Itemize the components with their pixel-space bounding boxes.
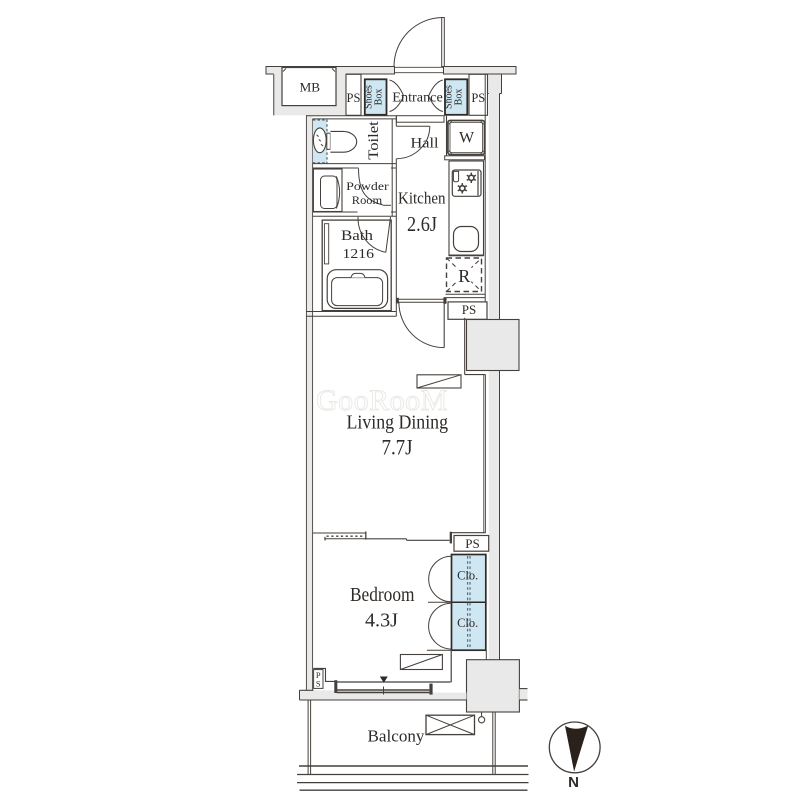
svg-text:Kitchen: Kitchen: [398, 189, 446, 208]
svg-text:Toilet: Toilet: [366, 120, 382, 160]
svg-text:PS: PS: [465, 536, 479, 551]
svg-text:MB: MB: [300, 80, 321, 94]
svg-text:Bath: Bath: [341, 228, 374, 244]
svg-text:4.3J: 4.3J: [365, 610, 398, 632]
svg-text:Room: Room: [352, 193, 383, 207]
svg-text:Hall: Hall: [411, 136, 439, 152]
svg-text:Entrance: Entrance: [392, 91, 443, 106]
svg-text:Clo.: Clo.: [457, 616, 478, 630]
svg-text:PS: PS: [462, 302, 476, 317]
svg-text:Clo.: Clo.: [457, 569, 478, 583]
svg-text:Living Dining: Living Dining: [347, 411, 449, 433]
svg-text:W: W: [459, 130, 475, 147]
svg-text:R: R: [458, 266, 470, 286]
svg-text:1216: 1216: [343, 247, 375, 262]
svg-text:N: N: [568, 774, 579, 791]
svg-text:Balcony: Balcony: [368, 727, 426, 746]
svg-text:Box: Box: [374, 89, 385, 106]
svg-text:Powder: Powder: [346, 179, 389, 193]
svg-text:Bedroom: Bedroom: [350, 584, 415, 606]
svg-text:2.6J: 2.6J: [407, 212, 437, 236]
svg-text:7.7J: 7.7J: [382, 435, 413, 460]
svg-text:PS: PS: [347, 91, 361, 105]
svg-text:PS: PS: [471, 91, 485, 105]
svg-text:S: S: [316, 678, 321, 688]
svg-text:Box: Box: [454, 89, 465, 106]
